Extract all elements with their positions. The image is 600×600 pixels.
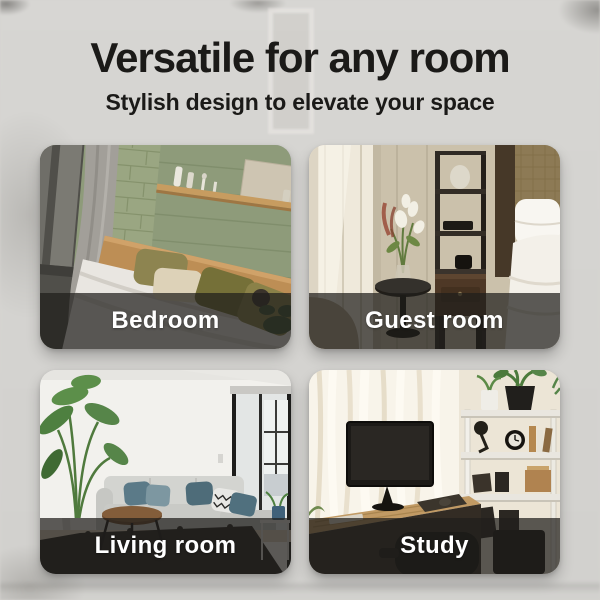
room-card-living-room: Living room <box>40 370 291 574</box>
living-room-label-band: Living room <box>40 518 291 574</box>
guest-room-label: Guest room <box>365 307 504 335</box>
study-label: Study <box>400 532 469 560</box>
alarm-clock <box>505 430 525 450</box>
room-card-study: Study <box>309 370 560 574</box>
page-title: Versatile for any room <box>0 36 600 80</box>
room-card-guest-room: Guest room <box>309 145 560 349</box>
wall-switch <box>218 454 223 463</box>
bedroom-label-band: Bedroom <box>40 293 291 349</box>
living-room-label: Living room <box>95 532 237 560</box>
bedroom-label: Bedroom <box>111 307 219 335</box>
study-label-band: Study <box>309 518 560 574</box>
guest-room-label-band: Guest room <box>309 293 560 349</box>
header: Versatile for any room Stylish design to… <box>0 36 600 116</box>
room-grid: Bedroom <box>40 145 560 574</box>
room-card-bedroom: Bedroom <box>40 145 291 349</box>
page-subtitle: Stylish design to elevate your space <box>0 89 600 116</box>
